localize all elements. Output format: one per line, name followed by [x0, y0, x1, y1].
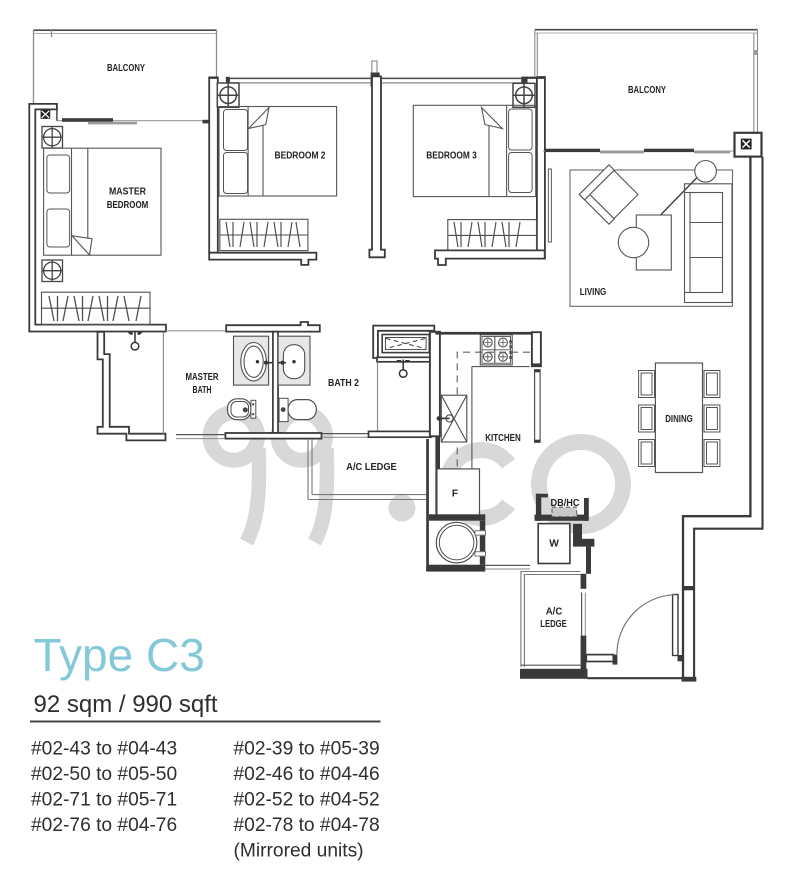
- svg-text:MASTER: MASTER: [109, 187, 147, 198]
- svg-text:Type C3: Type C3: [34, 629, 205, 681]
- svg-text:92 sqm / 990 sqft: 92 sqm / 990 sqft: [34, 691, 218, 718]
- svg-text:A/C: A/C: [546, 607, 563, 618]
- svg-text:BATH 2: BATH 2: [328, 378, 359, 389]
- svg-text:#02-39 to #05-39: #02-39 to #05-39: [234, 739, 380, 760]
- svg-text:#02-52 to #04-52: #02-52 to #04-52: [234, 790, 380, 811]
- svg-text:A/C LEDGE: A/C LEDGE: [346, 462, 397, 473]
- svg-text:BEDROOM: BEDROOM: [107, 200, 149, 211]
- svg-text:#02-71 to #05-71: #02-71 to #05-71: [31, 790, 177, 811]
- svg-text:#02-50 to #05-50: #02-50 to #05-50: [31, 764, 177, 785]
- svg-text:#02-78 to #04-78: #02-78 to #04-78: [234, 815, 380, 836]
- svg-text:(Mirrored units): (Mirrored units): [234, 841, 364, 862]
- svg-text:BATH: BATH: [193, 385, 212, 396]
- svg-text:MASTER: MASTER: [186, 372, 219, 383]
- svg-text:#02-43 to #04-43: #02-43 to #04-43: [31, 739, 177, 760]
- svg-text:LIVING: LIVING: [580, 287, 607, 298]
- svg-text:BEDROOM 3: BEDROOM 3: [426, 151, 477, 162]
- svg-text:LEDGE: LEDGE: [540, 619, 567, 630]
- svg-text:#02-46 to #04-46: #02-46 to #04-46: [234, 764, 380, 785]
- svg-text:BEDROOM 2: BEDROOM 2: [275, 151, 326, 162]
- svg-text:W: W: [549, 539, 559, 550]
- svg-text:KITCHEN: KITCHEN: [485, 433, 521, 444]
- svg-text:BALCONY: BALCONY: [628, 85, 666, 96]
- svg-text:#02-76 to #04-76: #02-76 to #04-76: [31, 815, 177, 836]
- svg-text:F: F: [452, 489, 458, 500]
- svg-text:BALCONY: BALCONY: [107, 63, 145, 74]
- svg-text:DINING: DINING: [665, 414, 693, 425]
